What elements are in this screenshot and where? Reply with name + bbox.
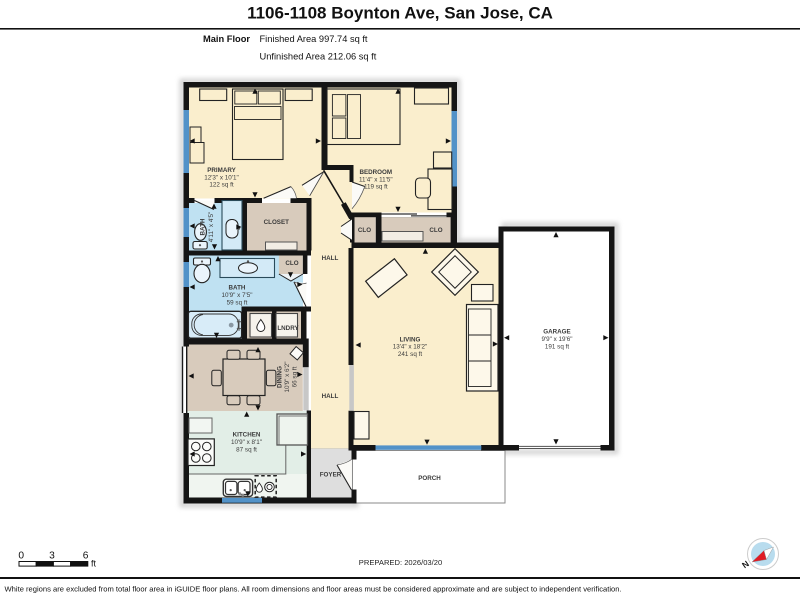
svg-text:GARAGE: GARAGE <box>543 329 570 336</box>
svg-text:59 sq ft: 59 sq ft <box>227 299 248 306</box>
svg-text:CLO: CLO <box>358 227 371 234</box>
svg-text:Main Floor: Main Floor <box>203 34 250 44</box>
svg-text:DINING: DINING <box>277 366 284 388</box>
svg-text:Unfinished Area 212.06 sq ft: Unfinished Area 212.06 sq ft <box>260 51 377 61</box>
svg-text:10'9" x 7'5": 10'9" x 7'5" <box>221 292 252 299</box>
svg-text:HALL: HALL <box>322 393 339 400</box>
svg-text:3: 3 <box>49 551 55 562</box>
svg-text:87 sq ft: 87 sq ft <box>236 446 257 453</box>
svg-text:10'9" x 6'2": 10'9" x 6'2" <box>284 361 291 392</box>
svg-text:10'9" x 8'1": 10'9" x 8'1" <box>231 439 262 446</box>
svg-text:White regions are excluded fro: White regions are excluded from total fl… <box>5 585 622 594</box>
svg-text:11'4" x 11'5": 11'4" x 11'5" <box>359 176 393 183</box>
svg-text:Finished Area 997.74 sq ft: Finished Area 997.74 sq ft <box>260 34 368 44</box>
svg-text:CLO: CLO <box>429 227 442 234</box>
svg-text:BATH: BATH <box>229 285 246 292</box>
svg-text:BATH: BATH <box>200 218 207 235</box>
svg-text:BEDROOM: BEDROOM <box>359 169 392 176</box>
svg-text:12'3" x 10'1": 12'3" x 10'1" <box>204 174 239 181</box>
svg-text:191 sq ft: 191 sq ft <box>545 344 569 351</box>
svg-text:CLOSET: CLOSET <box>264 219 290 226</box>
svg-text:241 sq ft: 241 sq ft <box>398 351 422 358</box>
svg-text:6: 6 <box>83 551 89 562</box>
svg-text:9'9" x 19'6": 9'9" x 19'6" <box>541 336 572 343</box>
svg-text:LIVING: LIVING <box>400 336 421 343</box>
svg-text:LNDRY: LNDRY <box>277 325 299 332</box>
svg-text:HALL: HALL <box>322 255 339 262</box>
svg-text:PREPARED: 2026/03/20: PREPARED: 2026/03/20 <box>359 558 442 567</box>
svg-text:FOYER: FOYER <box>320 472 342 479</box>
svg-text:119 sq ft: 119 sq ft <box>364 184 388 191</box>
svg-text:122 sq ft: 122 sq ft <box>209 182 233 189</box>
svg-text:0: 0 <box>18 551 24 562</box>
svg-text:CLO: CLO <box>285 260 298 267</box>
svg-text:PRIMARY: PRIMARY <box>207 167 236 174</box>
svg-text:4'11" x 4'5": 4'11" x 4'5" <box>208 212 215 243</box>
svg-text:13'4" x 18'2": 13'4" x 18'2" <box>393 344 428 351</box>
svg-text:PORCH: PORCH <box>418 475 441 482</box>
svg-text:KITCHEN: KITCHEN <box>233 431 261 438</box>
svg-text:ft: ft <box>91 559 97 569</box>
svg-text:1106-1108 Boynton Ave, San Jos: 1106-1108 Boynton Ave, San Jose, CA <box>247 3 553 22</box>
